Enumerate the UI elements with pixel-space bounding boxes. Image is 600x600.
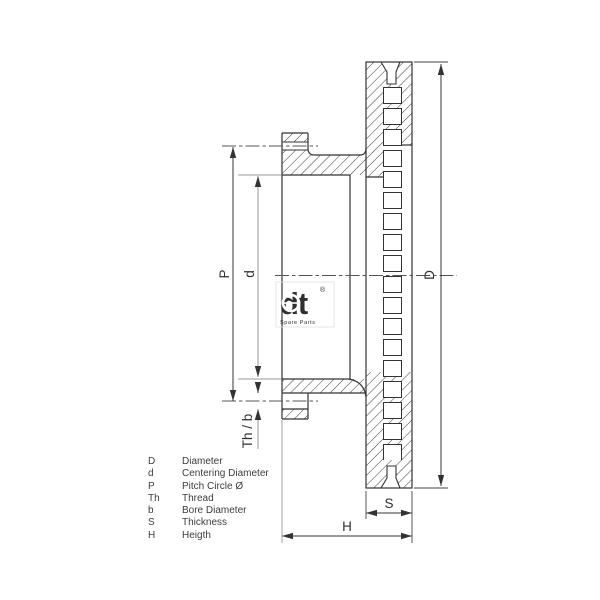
label-d: d [242, 270, 257, 278]
legend: D Diameter d Centering Diameter P Pitch … [148, 456, 269, 542]
top-flange-pocket [308, 148, 366, 155]
legend-label: Diameter [182, 456, 223, 468]
legend-label: Pitch Circle Ø [182, 481, 243, 493]
registered-mark: ® [320, 286, 326, 294]
label-H: H [342, 519, 352, 534]
legend-row: P Pitch Circle Ø [148, 481, 269, 493]
label-D: D [422, 270, 437, 280]
legend-row: Th Thread [148, 493, 269, 505]
label-P: P [217, 269, 232, 278]
legend-row: d Centering Diameter [148, 468, 269, 480]
disc-top-left-strip [366, 145, 383, 177]
technical-drawing-page: P d Th / b D S H dt ® Spare Parts D Diam… [0, 0, 600, 600]
legend-key: Th [148, 493, 182, 505]
label-thread-bore: Th / b [240, 414, 255, 449]
legend-key: P [148, 481, 182, 493]
legend-key: H [148, 530, 182, 542]
vent-slot-column [383, 87, 402, 460]
bottom-flange [282, 379, 366, 393]
legend-key: d [148, 468, 182, 480]
legend-label: Centering Diameter [182, 468, 269, 480]
legend-label: Bore Diameter [182, 505, 246, 517]
legend-key: D [148, 456, 182, 468]
legend-row: b Bore Diameter [148, 505, 269, 517]
legend-row: D Diameter [148, 456, 269, 468]
legend-key: b [148, 505, 182, 517]
top-flange [282, 155, 366, 175]
brake-disc-cross-section-drawing: P d Th / b D S H dt ® Spare Parts [0, 0, 600, 600]
legend-label: Thread [182, 493, 214, 505]
legend-label: Heigth [182, 530, 211, 542]
label-S: S [384, 496, 393, 511]
legend-key: S [148, 517, 182, 529]
bottom-bolt-boss [282, 409, 308, 419]
dt-logo-watermark: dt ® Spare Parts [276, 282, 334, 327]
legend-label: Thickness [182, 517, 227, 529]
logo-subtext: Spare Parts [280, 320, 316, 326]
legend-row: H Heigth [148, 530, 269, 542]
dim-line-thread-bore [255, 382, 261, 449]
legend-row: S Thickness [148, 517, 269, 529]
